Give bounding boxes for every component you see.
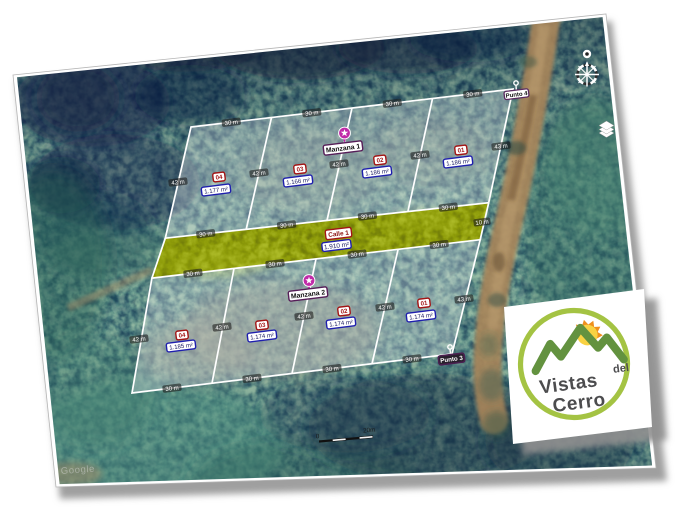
svg-text:del: del <box>612 362 629 376</box>
svg-text:20m: 20m <box>363 427 376 435</box>
